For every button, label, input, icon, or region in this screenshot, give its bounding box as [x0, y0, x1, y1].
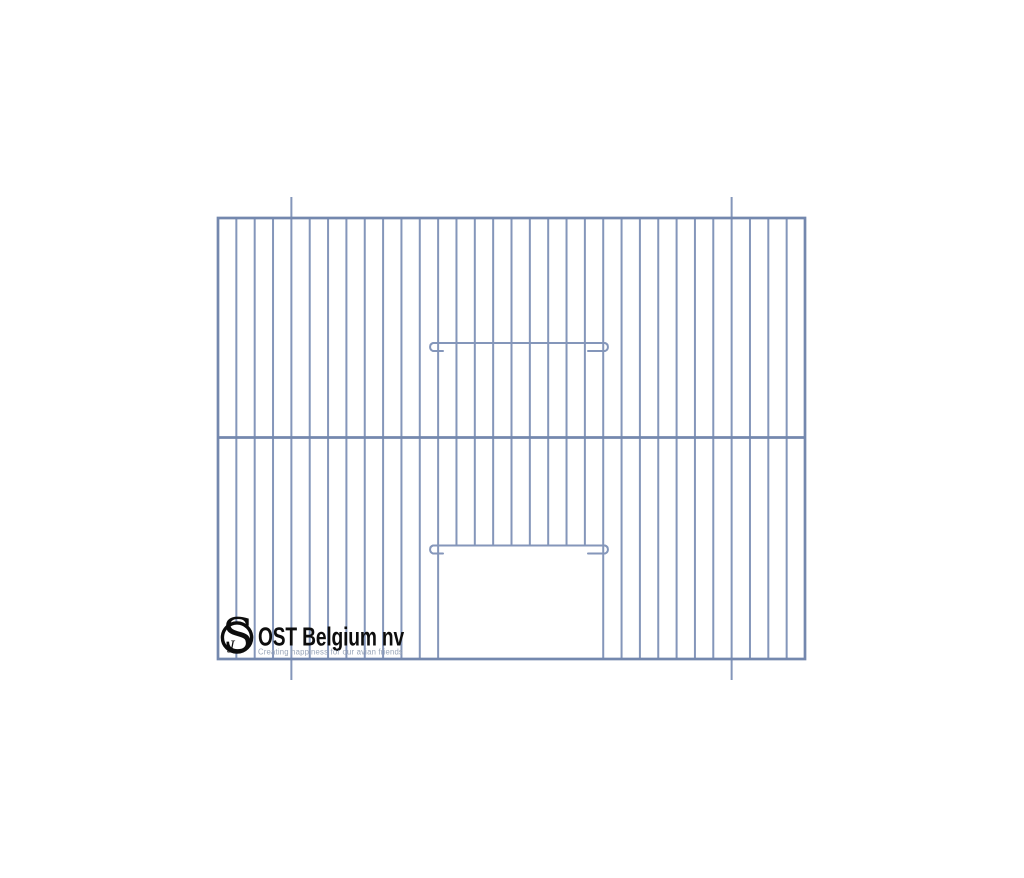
- door-hook-wire: [430, 546, 608, 554]
- cage-front-drawing: S J OST Belgium nv Creating happiness fo…: [0, 0, 1024, 878]
- logo: S J OST Belgium nv Creating happiness fo…: [222, 608, 404, 662]
- logo-tagline: Creating happiness for our avian friends: [258, 648, 403, 657]
- logo-monogram: S: [222, 608, 254, 662]
- wire-grid: [218, 197, 805, 680]
- drawing-stage: S J OST Belgium nv Creating happiness fo…: [0, 0, 1024, 878]
